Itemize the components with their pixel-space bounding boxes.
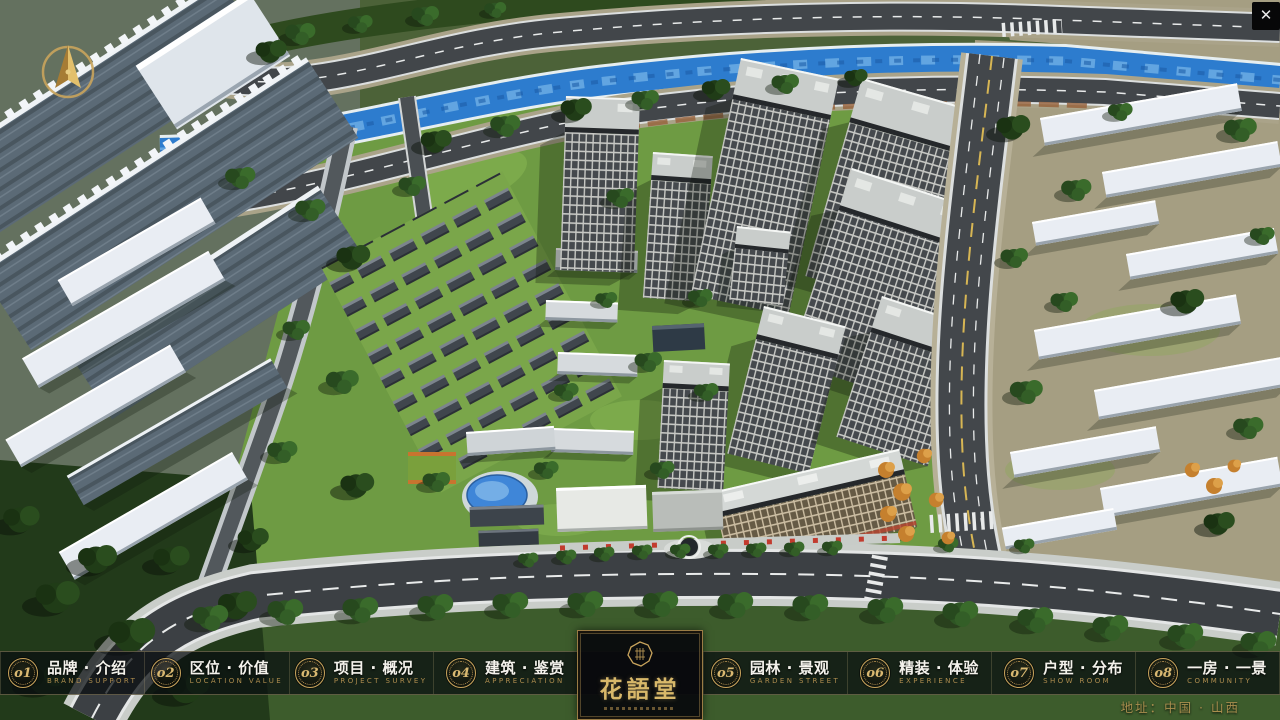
logo-title: 花語堂	[600, 670, 681, 704]
menu-item-label-zh: 户型 · 分布	[1043, 660, 1123, 677]
menu-item-architecture[interactable]: o4 建筑 · 鉴赏APPRECIATION	[433, 652, 577, 694]
menu-item-label-zh: 品牌 · 介绍	[47, 660, 137, 677]
number-medallion-icon: o7	[1004, 658, 1034, 688]
site-plan-rendering	[0, 0, 1280, 720]
menu-item-label-en: PROJECT SURVEY	[334, 678, 428, 686]
menu-item-label-zh: 园林 · 景观	[750, 660, 840, 677]
number-medallion-icon: o1	[8, 658, 38, 688]
menu-item-label-zh: 项目 · 概况	[334, 660, 428, 677]
close-button[interactable]: ✕	[1252, 2, 1280, 30]
menu-item-floorplans[interactable]: o7 户型 · 分布SHOW ROOM	[991, 652, 1135, 694]
menu-item-number: o2	[157, 666, 175, 681]
menu-item-label-en: BRAND SUPPORT	[47, 678, 137, 686]
address-text: 地址：中国 · 山西	[1121, 697, 1240, 716]
menu-item-label-zh: 一房 · 一景	[1187, 660, 1267, 677]
menu-item-number: o1	[14, 666, 32, 681]
menu-item-garden[interactable]: o5 园林 · 景观GARDEN STREET	[703, 652, 847, 694]
menu-group-right: o5 园林 · 景观GARDEN STREET o6 精装 · 体验EXPERI…	[703, 652, 1280, 694]
number-medallion-icon: o6	[860, 658, 890, 688]
menu-item-label-zh: 区位 · 价值	[190, 660, 283, 677]
menu-group-left: o1 品牌 · 介绍BRAND SUPPORT o2 区位 · 价值LOCATI…	[0, 652, 577, 694]
menu-item-number: o5	[717, 666, 735, 681]
number-medallion-icon: o2	[151, 658, 181, 688]
number-medallion-icon: o5	[711, 658, 741, 688]
number-medallion-icon: o8	[1148, 658, 1178, 688]
menu-item-label-en: EXPERIENCE	[899, 678, 979, 686]
menu-item-label-en: COMMUNITY	[1187, 678, 1267, 686]
menu-item-label-zh: 建筑 · 鉴赏	[485, 660, 565, 677]
menu-item-label-en: GARDEN STREET	[750, 678, 840, 686]
menu-item-number: o8	[1154, 666, 1172, 681]
menu-item-brand[interactable]: o1 品牌 · 介绍BRAND SUPPORT	[0, 652, 144, 694]
presentation-stage: ✕ o1 品牌 · 介绍BRAND SUPPORT o2 区位 · 价值LOCA…	[0, 0, 1280, 720]
logo-caption-line	[604, 707, 676, 710]
menu-item-label-en: LOCATION VALUE	[190, 678, 283, 686]
menu-item-label-en: SHOW ROOM	[1043, 678, 1123, 686]
menu-item-project[interactable]: o3 项目 · 概况PROJECT SURVEY	[289, 652, 433, 694]
menu-item-number: o7	[1010, 666, 1028, 681]
menu-item-number: o4	[452, 666, 470, 681]
project-logo[interactable]: 花語堂	[577, 630, 703, 720]
menu-item-location[interactable]: o2 区位 · 价值LOCATION VALUE	[144, 652, 288, 694]
number-medallion-icon: o4	[446, 658, 476, 688]
menu-item-number: o3	[301, 666, 319, 681]
menu-item-views[interactable]: o8 一房 · 一景COMMUNITY	[1135, 652, 1280, 694]
number-medallion-icon: o3	[295, 658, 325, 688]
menu-item-number: o6	[866, 666, 884, 681]
logo-seal-icon	[627, 641, 653, 667]
menu-item-interior[interactable]: o6 精装 · 体验EXPERIENCE	[847, 652, 991, 694]
menu-item-label-en: APPRECIATION	[485, 678, 565, 686]
menu-item-label-zh: 精装 · 体验	[899, 660, 979, 677]
pavilion-roof	[652, 323, 705, 352]
